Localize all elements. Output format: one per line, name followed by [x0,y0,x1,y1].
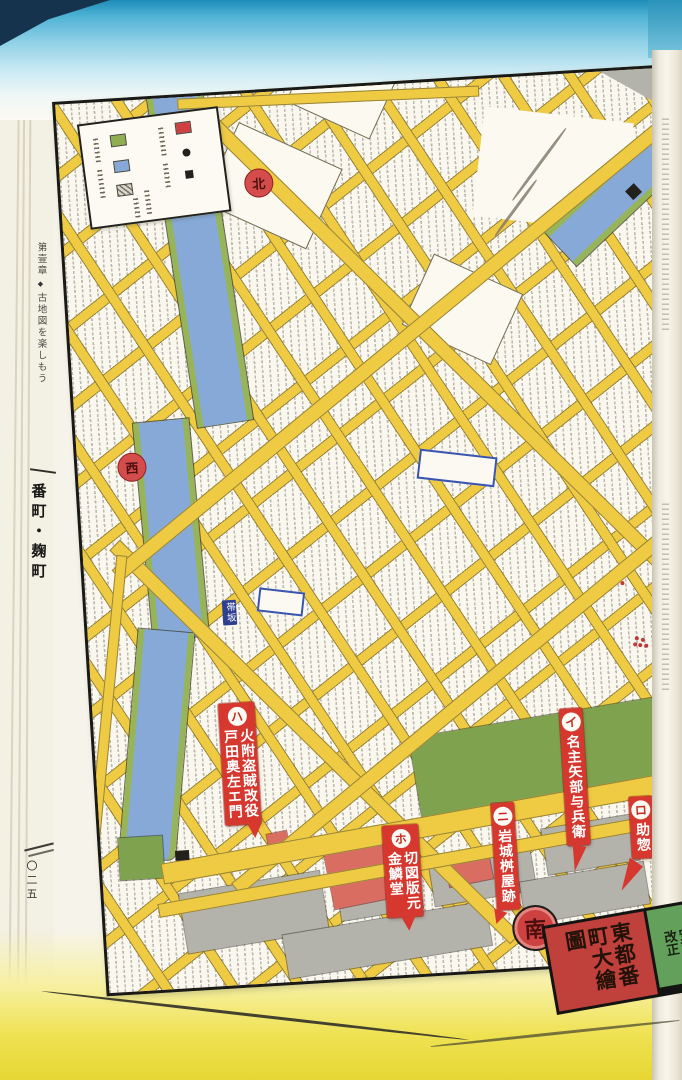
marker-ho-pointer [401,916,416,931]
legend-label-text [133,195,141,217]
legend-blue-square [114,160,129,172]
legend-label-text [144,188,152,214]
blue-outlined-plot [257,587,305,616]
obizaka-road-tag: 帯坂 [222,600,237,626]
map-edition: 安政改正 [659,927,682,964]
legend-label-text [162,161,170,187]
marker-ro-index: ロ [631,800,651,820]
map-legend [77,106,232,230]
cartouche-title-box: 東都番町大繪圖 [545,911,658,1011]
legend-black-dot [182,148,191,157]
marker-ni-label: 岩城桝屋跡 [496,828,517,904]
marker-i-pointer [568,844,587,872]
map-title: 東都番町大繪圖 [561,920,642,1003]
marker-i-label: 名主矢部与兵衛 [564,734,586,840]
marker-ho-index: ホ [391,829,411,849]
marker-i-line1: 名主矢部与兵衛 [564,734,586,840]
marker-ho-line1: 切図版元 [401,850,421,911]
marker-ha-pointer [247,824,262,839]
marker-ha-banner: ハ 火附盗賊改役 戸田奥左エ門 [218,702,262,826]
legend-label-text [158,125,167,155]
legend-hatched-square [117,184,132,196]
chapter-heading: 第壹章◆古地図を楽しもう [36,242,46,385]
facing-page-text [662,115,669,330]
marker-ro-label: 助惣 [634,822,652,853]
legend-black-square [185,170,194,179]
green-block [118,836,164,881]
marker-ni-line1: 岩城桝屋跡 [496,828,517,904]
legend-green-square [111,134,126,146]
marker-ni-index: ニ [493,806,513,826]
legend-label-text [97,168,106,198]
marker-ho: ホ 切図版元 金鱗堂 [382,824,425,932]
marker-ro-line1: 助惣 [634,822,652,853]
diamond-icon: ◆ [37,277,45,293]
marker-ha-index: ハ [227,706,247,726]
facing-page-text [662,500,669,690]
legend-red-square [176,122,191,134]
book-photo: 第壹章◆古地図を楽しもう 番町・麹町 〇二五 [0,0,682,1080]
marker-ha-label: 火附盗賊改役 戸田奥左エ門 [222,728,260,820]
chapter-number: 第壹章 [36,242,47,277]
marker-ho-label: 切図版元 金鱗堂 [385,850,421,912]
old-edo-map: 北 西 東 南 帯坂 ハ 火附盗賊改役 戸田奥左エ門 ホ 切図版元 金鱗堂 [52,64,682,996]
page-number: 〇二五 [23,860,39,902]
legend-label-text [93,138,101,162]
chapter-title: 古地図を楽しもう [36,293,47,385]
gate-mark [175,850,190,861]
marker-ho-banner: ホ 切図版元 金鱗堂 [382,824,424,918]
section-title: 番町・麹町 [30,483,47,583]
marker-i-index: イ [561,712,581,732]
